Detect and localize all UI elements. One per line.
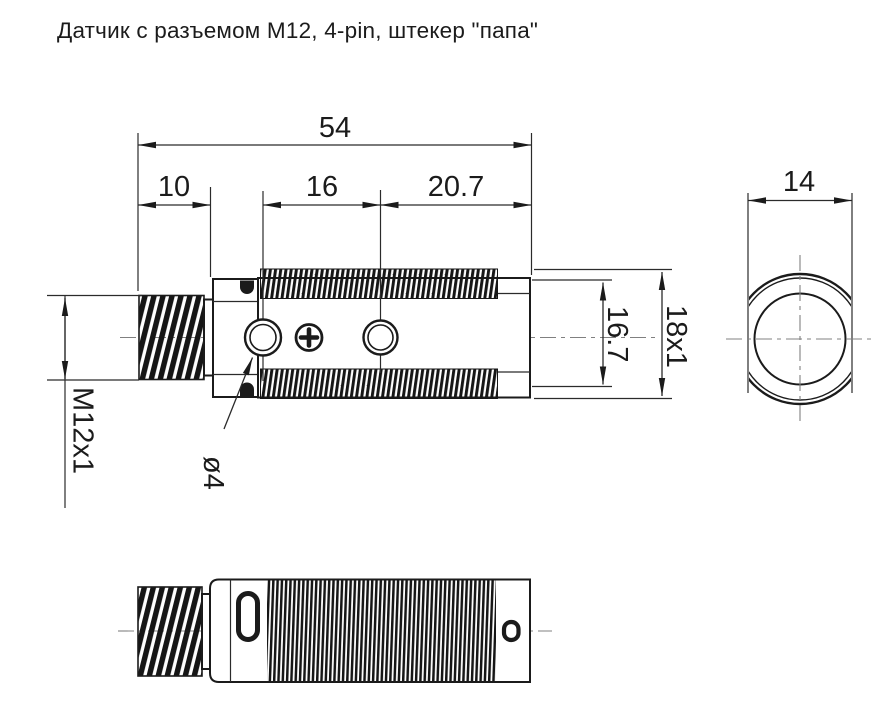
dim-body-diameter-label: 16.7 bbox=[601, 306, 633, 362]
dim-connector-thread-label: M12x1 bbox=[67, 387, 99, 474]
dim-hole-spacing-label: 16 bbox=[306, 171, 338, 203]
dim-total-length-label: 54 bbox=[319, 112, 351, 144]
connector-step bbox=[204, 300, 213, 376]
dim-rear-length-label: 20.7 bbox=[428, 171, 484, 203]
bottom-indicator-hole bbox=[504, 622, 519, 640]
collar-latch-top bbox=[240, 281, 254, 295]
bottom-view bbox=[118, 580, 552, 683]
side-view: 54 10 16 20.7 M12x1 bbox=[47, 112, 692, 508]
body-thread-top bbox=[261, 269, 498, 299]
dim-rear-length: 20.7 bbox=[381, 171, 532, 205]
adjustment-screw bbox=[296, 325, 322, 351]
dim-across-flats-label: 14 bbox=[783, 166, 815, 198]
dim-connector-length: 10 bbox=[138, 171, 211, 277]
bottom-connector-thread bbox=[138, 587, 202, 676]
connector-thread bbox=[139, 296, 204, 380]
end-view: 14 bbox=[726, 166, 874, 423]
dim-hole-diameter-label: ø4 bbox=[197, 456, 229, 490]
technical-drawing: 54 10 16 20.7 M12x1 bbox=[0, 0, 888, 708]
dim-hole-spacing: 16 bbox=[263, 171, 381, 205]
dim-body-diameter: 16.7 bbox=[532, 280, 633, 387]
dim-connector-length-label: 10 bbox=[158, 171, 190, 203]
body-thread-bottom bbox=[261, 369, 498, 399]
drawing-page: Датчик с разъемом M12, 4-pin, штекер "па… bbox=[0, 0, 888, 708]
dim-connector-thread: M12x1 bbox=[47, 296, 142, 509]
dim-body-thread-label: 18x1 bbox=[660, 305, 692, 368]
bottom-connector-step bbox=[202, 594, 210, 669]
bottom-body-thread bbox=[267, 581, 496, 682]
